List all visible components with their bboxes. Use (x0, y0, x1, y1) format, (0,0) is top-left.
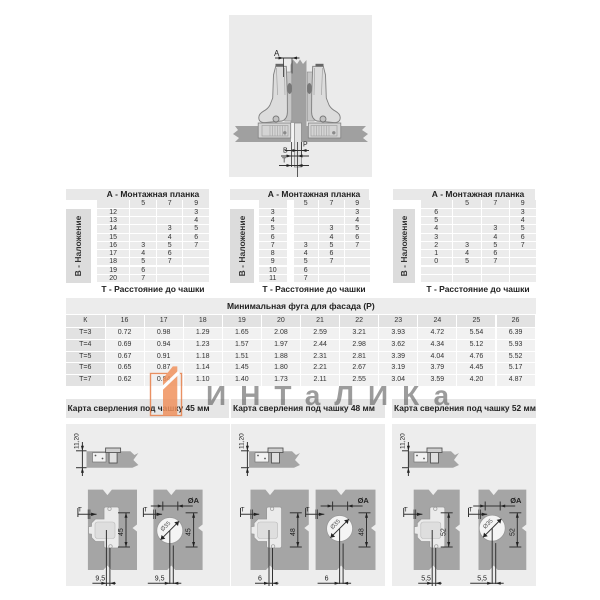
svg-text:B: B (283, 147, 288, 154)
svg-text:11,20: 11,20 (400, 433, 407, 449)
svg-text:9,5: 9,5 (95, 576, 105, 583)
svg-text:ØA: ØA (510, 496, 522, 505)
svg-text:T: T (241, 507, 245, 514)
svg-text:11,20: 11,20 (73, 433, 80, 449)
svg-text:5,5: 5,5 (477, 576, 487, 583)
svg-text:6: 6 (325, 576, 329, 583)
svg-text:T: T (306, 507, 310, 514)
svg-text:ØA: ØA (187, 496, 199, 505)
svg-text:11,20: 11,20 (239, 433, 246, 449)
svg-text:52: 52 (441, 528, 448, 536)
svg-text:9,5: 9,5 (154, 576, 164, 583)
svg-text:45: 45 (185, 528, 192, 536)
svg-text:52: 52 (509, 528, 516, 536)
svg-text:P: P (303, 141, 308, 148)
svg-text:6: 6 (258, 576, 262, 583)
svg-text:T: T (143, 507, 147, 514)
svg-text:45: 45 (118, 528, 125, 536)
svg-text:T: T (404, 507, 408, 514)
svg-text:T: T (282, 157, 287, 164)
svg-text:A: A (274, 49, 280, 58)
svg-text:T: T (77, 507, 81, 514)
svg-text:48: 48 (290, 528, 297, 536)
svg-text:T: T (469, 507, 473, 514)
svg-text:48: 48 (359, 528, 366, 536)
svg-text:ØA: ØA (358, 496, 370, 505)
svg-text:5,5: 5,5 (421, 576, 431, 583)
